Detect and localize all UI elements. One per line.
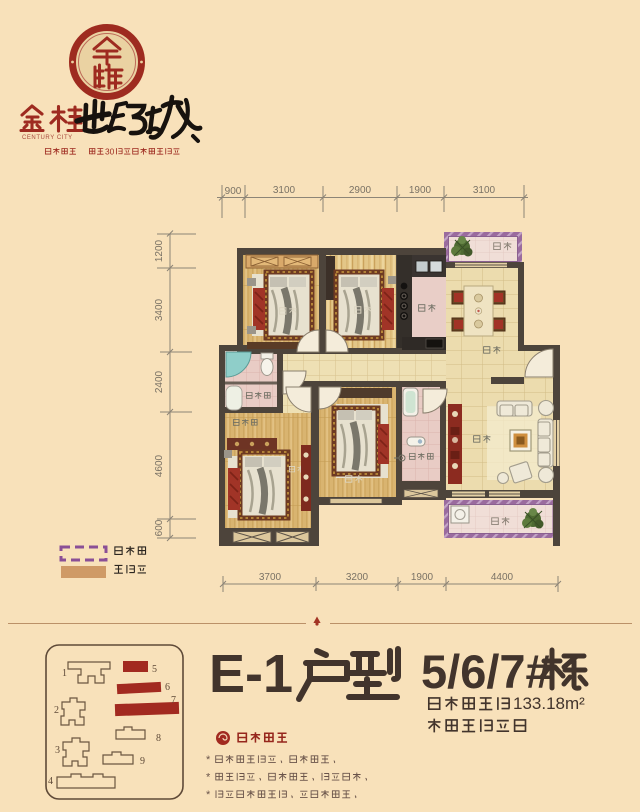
svg-text:133.18m²: 133.18m²: [513, 694, 585, 713]
svg-text:2: 2: [54, 705, 59, 716]
svg-text:600: 600: [154, 519, 165, 536]
svg-text:2900: 2900: [349, 185, 372, 196]
svg-text:2400: 2400: [154, 370, 165, 393]
svg-text:3700: 3700: [259, 572, 282, 583]
svg-text:5: 5: [152, 664, 157, 675]
svg-text:900: 900: [225, 186, 242, 197]
svg-text:1900: 1900: [411, 572, 434, 583]
svg-text:1200: 1200: [154, 239, 165, 262]
svg-text:*: *: [206, 772, 211, 784]
svg-text:*: *: [206, 754, 211, 766]
svg-text:9: 9: [140, 756, 145, 767]
svg-text:30: 30: [105, 147, 115, 157]
svg-text:3100: 3100: [273, 185, 296, 196]
svg-text:E-1: E-1: [209, 644, 293, 704]
svg-text:5/6/7#: 5/6/7#: [421, 645, 552, 698]
svg-text:4400: 4400: [491, 572, 514, 583]
svg-text:6: 6: [165, 682, 170, 693]
svg-text:3400: 3400: [154, 298, 165, 321]
svg-text:3100: 3100: [473, 185, 496, 196]
svg-text:3: 3: [55, 745, 60, 756]
svg-text:3200: 3200: [346, 572, 369, 583]
svg-text:1: 1: [62, 668, 67, 679]
svg-text:8: 8: [156, 733, 161, 744]
svg-text:*: *: [206, 789, 211, 801]
svg-text:1900: 1900: [409, 185, 432, 196]
svg-text:4: 4: [48, 776, 53, 787]
svg-text:7: 7: [171, 695, 176, 706]
svg-text:CENTURY CITY: CENTURY CITY: [22, 135, 73, 141]
svg-text:4600: 4600: [154, 454, 165, 477]
